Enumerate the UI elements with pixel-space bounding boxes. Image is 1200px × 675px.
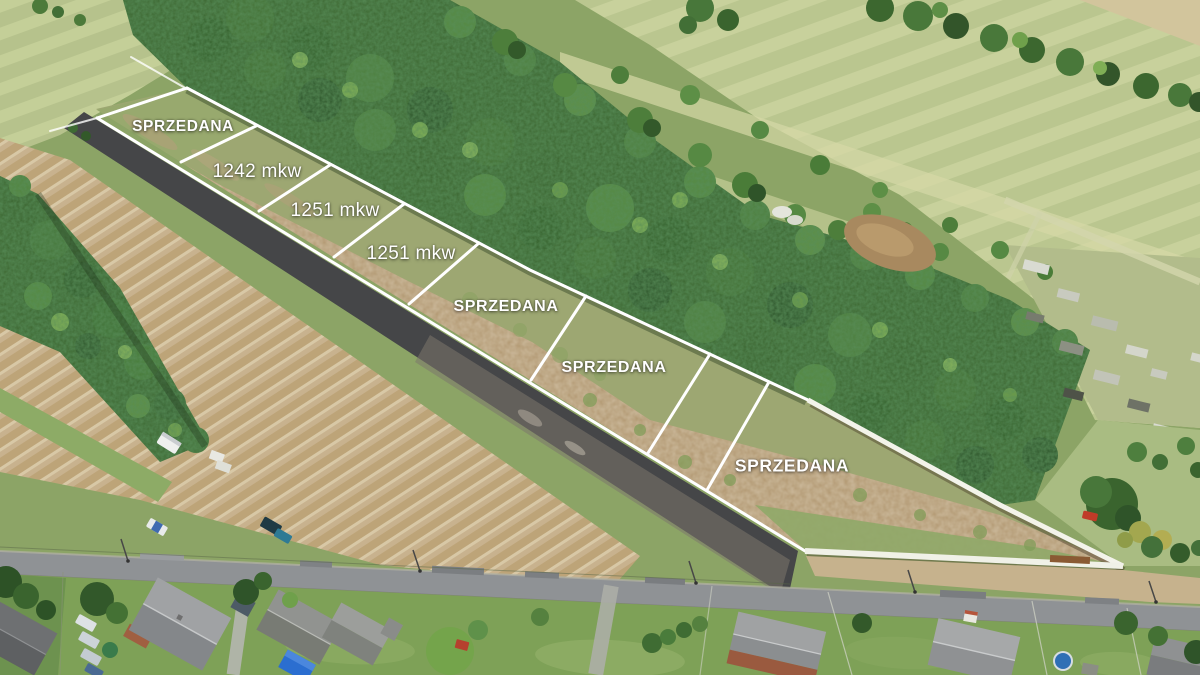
plot-label-sold-1: SPRZEDANA [132, 118, 234, 136]
plot-label-area-1251-b: 1251 mkw [367, 243, 456, 265]
plot-label-sold-2: SPRZEDANA [454, 298, 559, 316]
green-tarp [102, 642, 118, 658]
plot-label-area-1242: 1242 mkw [213, 161, 302, 183]
plot-label-sold-4: SPRZEDANA [735, 456, 849, 477]
plot-label-area-1251-a: 1251 mkw [291, 200, 380, 222]
aerial-photo: SPRZEDANA 1242 mkw 1251 mkw 1251 mkw SPR… [0, 0, 1200, 675]
plot-label-sold-3: SPRZEDANA [562, 359, 667, 377]
doghouse [963, 610, 978, 623]
aerial-photo-svg [0, 0, 1200, 675]
